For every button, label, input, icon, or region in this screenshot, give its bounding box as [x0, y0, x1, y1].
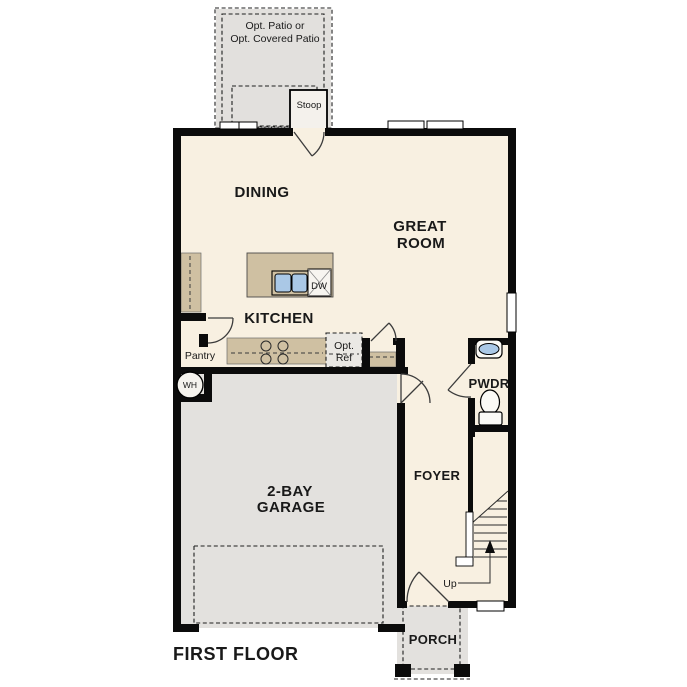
floor-plan-page: Opt. Patio or Opt. Covered Patio Stoop P… [0, 0, 687, 687]
window-great-room-2 [427, 121, 463, 129]
optional-refrigerator: Opt. Ref [326, 333, 362, 367]
opt-ref-label-line2: Ref [336, 352, 352, 364]
stair-newel [456, 557, 473, 566]
water-heater-label: WH [183, 380, 197, 390]
window-foyer-front [477, 601, 504, 611]
water-heater: WH [177, 372, 203, 398]
powder-label: PWDR [469, 376, 510, 391]
kitchen-label: KITCHEN [244, 310, 313, 327]
great-room-label-line2: ROOM [397, 235, 445, 252]
dining-label: DINING [235, 184, 290, 201]
garage-label-line1: 2-BAY [267, 483, 313, 500]
porch-post-right [454, 664, 470, 677]
stairs-up-label: Up [443, 578, 457, 590]
closet-shelf [368, 352, 396, 367]
foyer-label: FOYER [414, 468, 461, 483]
left-counter [181, 253, 201, 312]
sink-basin-left [275, 274, 291, 292]
porch: PORCH [394, 606, 470, 679]
window-dining [220, 122, 239, 129]
window-great-room-side [507, 293, 516, 332]
toilet [479, 390, 502, 425]
opt-ref-label-line1: Opt. [334, 340, 354, 352]
dishwasher: DW [308, 269, 331, 296]
stoop: Stoop [290, 90, 327, 130]
sink-basin-right [292, 274, 307, 292]
dishwasher-label: DW [311, 281, 327, 292]
stair-railing [466, 512, 473, 561]
window-dining-2 [239, 122, 257, 129]
kitchen-island: DW [247, 253, 333, 297]
porch-label: PORCH [409, 632, 457, 647]
window-great-room-1 [388, 121, 424, 129]
great-room-label-line1: GREAT [393, 218, 446, 235]
stoop-label: Stoop [297, 100, 322, 111]
vanity-sink [476, 340, 502, 358]
pantry-label: Pantry [185, 350, 216, 362]
porch-post-left [395, 664, 411, 677]
garage-label-line2: GARAGE [257, 499, 325, 516]
opt-patio-label-line2: Opt. Covered Patio [230, 33, 319, 45]
floor-plan-drawing: Opt. Patio or Opt. Covered Patio Stoop P… [0, 0, 687, 687]
plan-title: FIRST FLOOR [173, 644, 299, 664]
opt-patio-label-line1: Opt. Patio or [246, 20, 305, 32]
